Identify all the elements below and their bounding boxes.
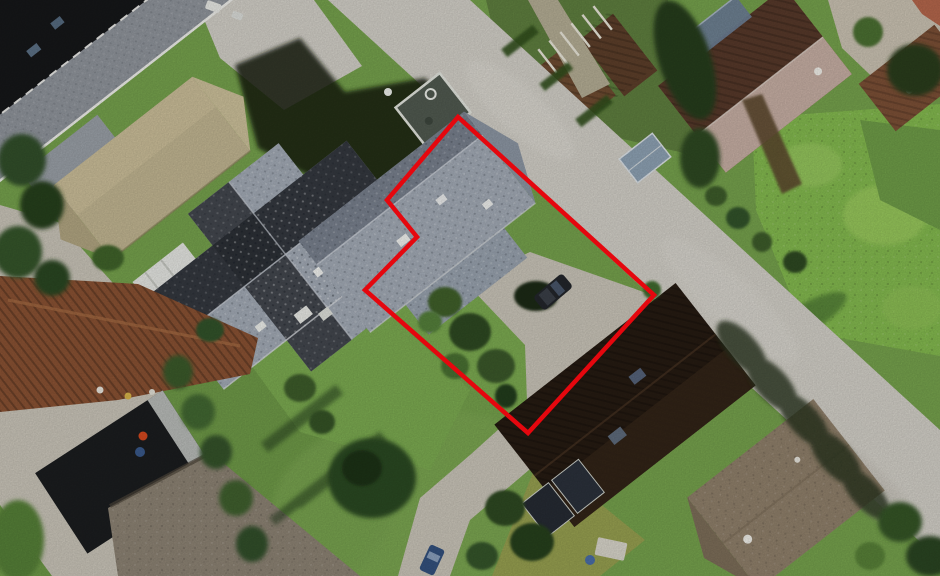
aerial-photo-canvas [0, 0, 940, 576]
photo-grain [0, 0, 940, 576]
aerial-photo [0, 0, 940, 576]
